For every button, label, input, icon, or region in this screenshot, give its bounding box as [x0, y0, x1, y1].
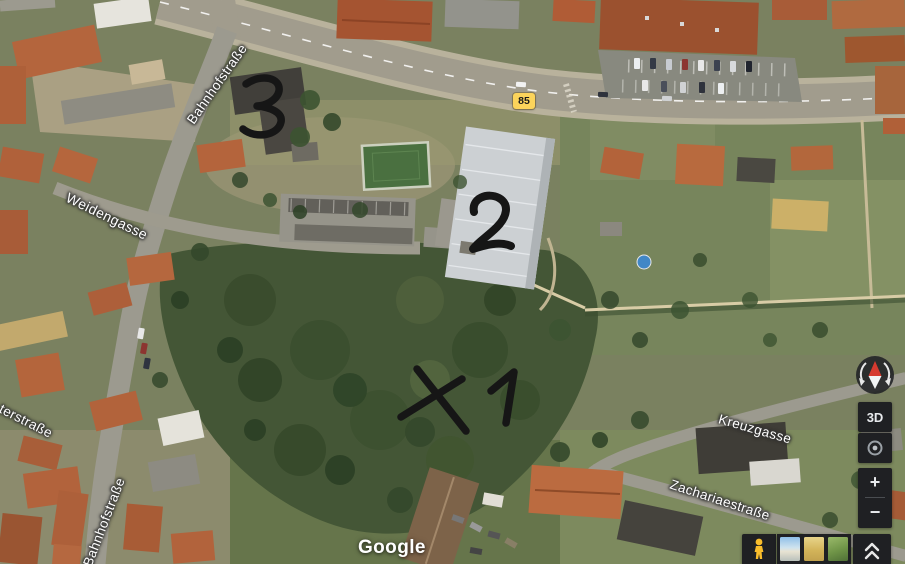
satellite-imagery: [0, 0, 905, 564]
zoom-out-button[interactable]: −: [858, 498, 892, 527]
tilt-3d-button[interactable]: 3D: [858, 402, 892, 432]
zoom-in-button[interactable]: +: [858, 468, 892, 497]
pegman-button[interactable]: [742, 534, 776, 564]
imagery-thumbnails: [777, 534, 851, 564]
my-location-button[interactable]: [858, 433, 892, 463]
route-shield-85: 85: [513, 93, 535, 109]
imagery-thumbnail-sand[interactable]: [804, 537, 824, 561]
location-target-icon: [865, 438, 885, 458]
compass-icon: [855, 355, 895, 395]
google-maps-satellite-view: Bahnhofstraße Weidengasse terstraße Bahn…: [0, 0, 905, 564]
google-logo[interactable]: Google: [358, 537, 426, 559]
imagery-thumbnail-sky[interactable]: [780, 537, 800, 561]
chevron-up-icon: [853, 534, 891, 564]
compass-control[interactable]: [855, 355, 895, 395]
expand-imagery-button[interactable]: [853, 534, 891, 564]
zoom-control: + −: [858, 468, 892, 528]
imagery-thumbnail-green[interactable]: [828, 537, 848, 561]
pegman-icon: [749, 537, 769, 561]
